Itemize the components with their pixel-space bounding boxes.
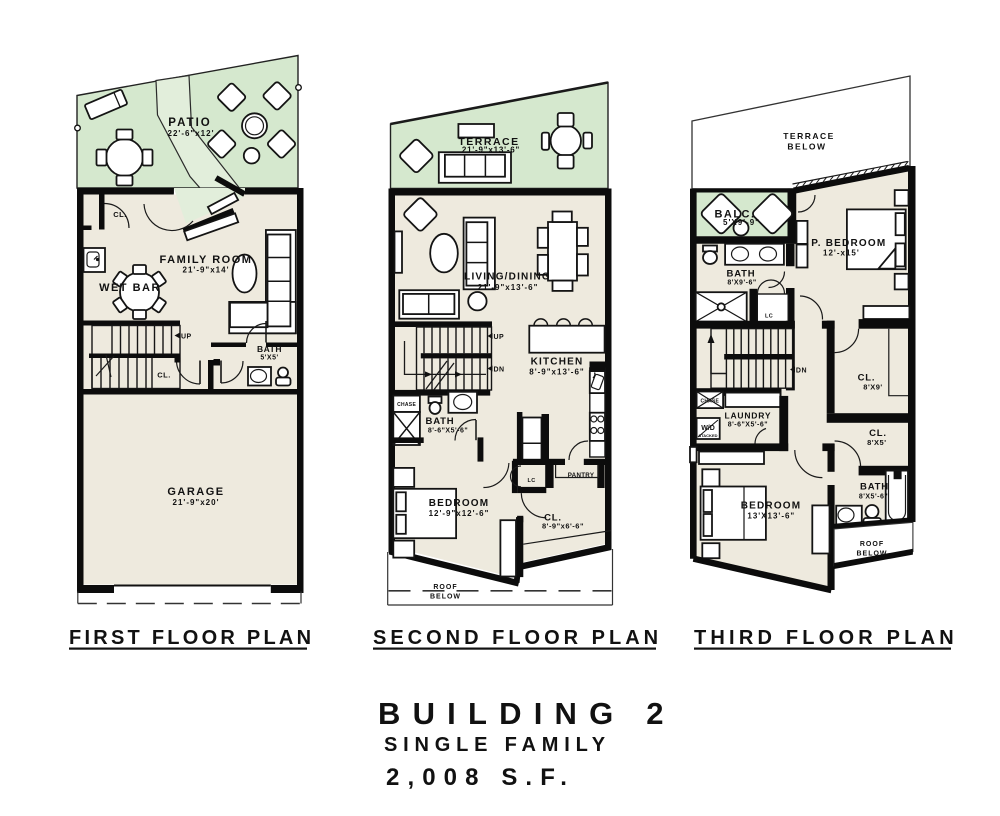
svg-text:BATH: BATH xyxy=(860,482,889,493)
svg-text:LC: LC xyxy=(528,478,536,484)
svg-text:8'-6"X5'-6": 8'-6"X5'-6" xyxy=(728,422,768,429)
svg-text:SECOND FLOOR PLAN: SECOND FLOOR PLAN xyxy=(373,627,662,649)
svg-text:8'X9': 8'X9' xyxy=(863,383,882,392)
svg-text:FIRST FLOOR PLAN: FIRST FLOOR PLAN xyxy=(69,627,314,649)
svg-text:WET BAR: WET BAR xyxy=(99,282,161,294)
svg-text:P. BEDROOM: P. BEDROOM xyxy=(811,238,886,249)
svg-text:2,008 S.F.: 2,008 S.F. xyxy=(386,764,575,791)
svg-text:PATIO: PATIO xyxy=(168,117,211,129)
svg-text:GARAGE: GARAGE xyxy=(167,486,224,498)
svg-text:8'-9"x6'-6": 8'-9"x6'-6" xyxy=(542,522,584,531)
svg-text:BEDROOM: BEDROOM xyxy=(429,498,490,509)
svg-text:KITCHEN: KITCHEN xyxy=(531,357,584,368)
svg-text:BELOW: BELOW xyxy=(787,142,826,152)
svg-text:8'X9'-6": 8'X9'-6" xyxy=(727,280,756,287)
svg-text:LIVING/DINING: LIVING/DINING xyxy=(464,272,551,283)
svg-text:8'X5'-6": 8'X5'-6" xyxy=(859,494,888,501)
svg-text:22'-6"x12': 22'-6"x12' xyxy=(168,129,215,138)
svg-text:BUILDING 2: BUILDING 2 xyxy=(378,696,676,731)
svg-text:DN: DN xyxy=(796,368,807,375)
svg-text:CL.: CL. xyxy=(157,371,171,380)
svg-text:LC: LC xyxy=(765,314,773,320)
svg-text:5'X5': 5'X5' xyxy=(260,355,278,362)
svg-text:BATH: BATH xyxy=(257,344,282,354)
svg-text:ROOF: ROOF xyxy=(433,584,457,591)
svg-text:CHASE: CHASE xyxy=(701,399,720,405)
svg-text:8'-9"x13'-6": 8'-9"x13'-6" xyxy=(529,368,584,377)
svg-text:21'-9"x13'-6": 21'-9"x13'-6" xyxy=(478,283,539,292)
svg-text:UP: UP xyxy=(181,334,192,341)
svg-text:W/D: W/D xyxy=(701,425,715,432)
svg-text:8'X5': 8'X5' xyxy=(867,438,886,447)
svg-text:BELOW: BELOW xyxy=(856,551,887,558)
svg-text:BATH: BATH xyxy=(426,416,455,427)
svg-text:21'-9"x14': 21'-9"x14' xyxy=(183,266,230,275)
svg-text:THIRD FLOOR PLAN: THIRD FLOOR PLAN xyxy=(694,627,958,649)
svg-text:STACKED: STACKED xyxy=(698,433,717,438)
svg-text:SINGLE FAMILY: SINGLE FAMILY xyxy=(384,734,611,756)
svg-text:8'-6"X5'-6": 8'-6"X5'-6" xyxy=(428,428,468,435)
svg-text:LAUNDRY: LAUNDRY xyxy=(724,411,771,421)
svg-text:UP: UP xyxy=(494,334,505,341)
svg-text:5'X9'-9": 5'X9'-9" xyxy=(723,218,760,227)
svg-text:ROOF: ROOF xyxy=(860,541,884,548)
svg-text:12'-9"x12'-6": 12'-9"x12'-6" xyxy=(429,509,490,518)
svg-text:21'-9"x20': 21'-9"x20' xyxy=(173,498,220,507)
svg-text:TERRACE: TERRACE xyxy=(783,131,835,141)
svg-text:BELOW: BELOW xyxy=(430,594,461,601)
svg-text:BATH: BATH xyxy=(727,269,756,280)
svg-text:CHASE: CHASE xyxy=(397,402,416,408)
svg-text:13'X13'-6": 13'X13'-6" xyxy=(747,512,795,521)
svg-text:12'-x15': 12'-x15' xyxy=(823,249,860,258)
svg-text:PANTRY: PANTRY xyxy=(568,472,595,479)
svg-text:BEDROOM: BEDROOM xyxy=(741,501,802,512)
svg-text:DN: DN xyxy=(494,367,505,374)
svg-text:FAMILY ROOM: FAMILY ROOM xyxy=(160,254,253,266)
